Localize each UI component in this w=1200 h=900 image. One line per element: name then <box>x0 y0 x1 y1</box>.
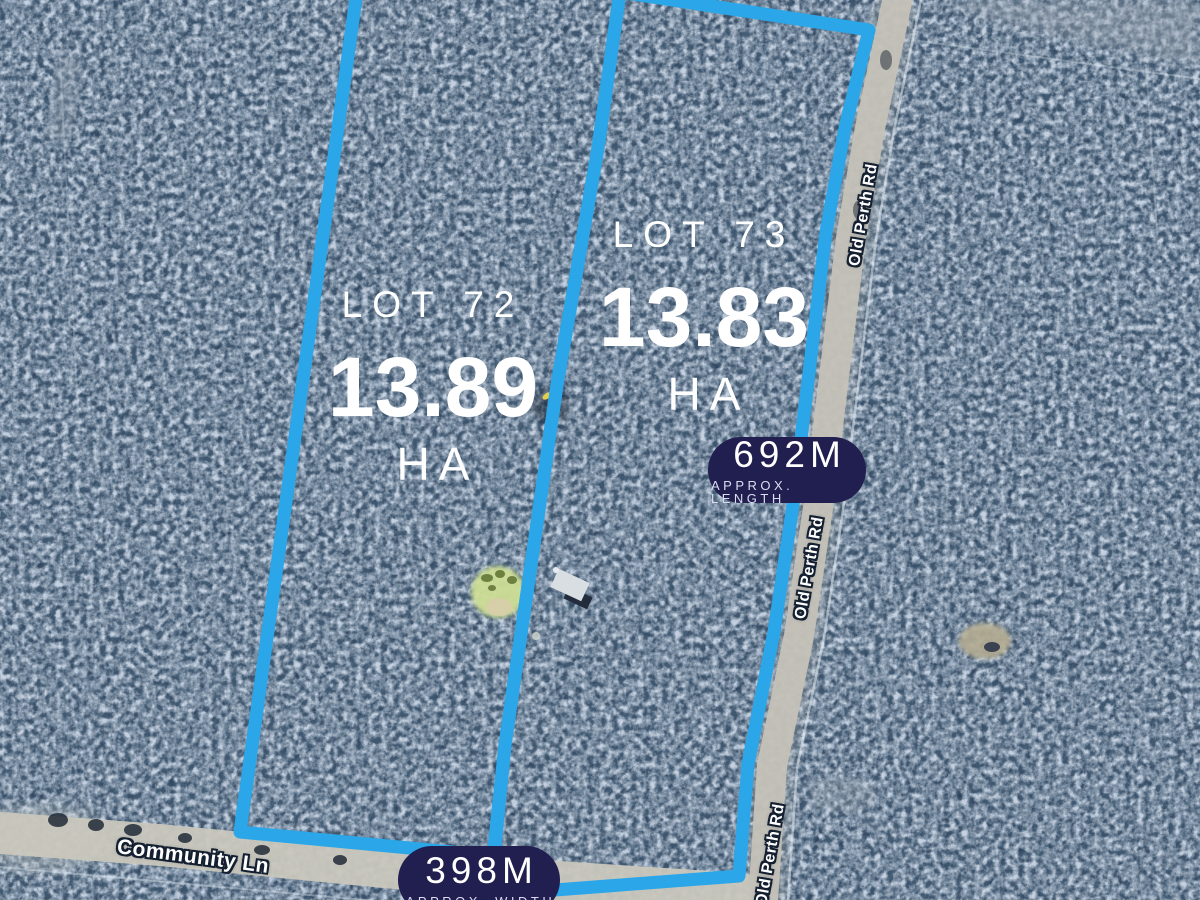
property-lot-map: Old Perth Rd Old Perth Rd Old Perth Rd C… <box>0 0 1200 900</box>
width-badge-value: 398M <box>420 852 538 889</box>
length-badge-caption: APPROX. LENGTH <box>708 479 866 505</box>
shed-clearing-east <box>959 623 1011 659</box>
width-badge: 398M APPROX. WIDTH <box>398 846 560 900</box>
width-badge-caption: APPROX. WIDTH <box>403 895 556 900</box>
satellite-map <box>0 0 1200 900</box>
length-badge-value: 692M <box>728 436 846 473</box>
length-badge: 692M APPROX. LENGTH <box>708 437 866 503</box>
